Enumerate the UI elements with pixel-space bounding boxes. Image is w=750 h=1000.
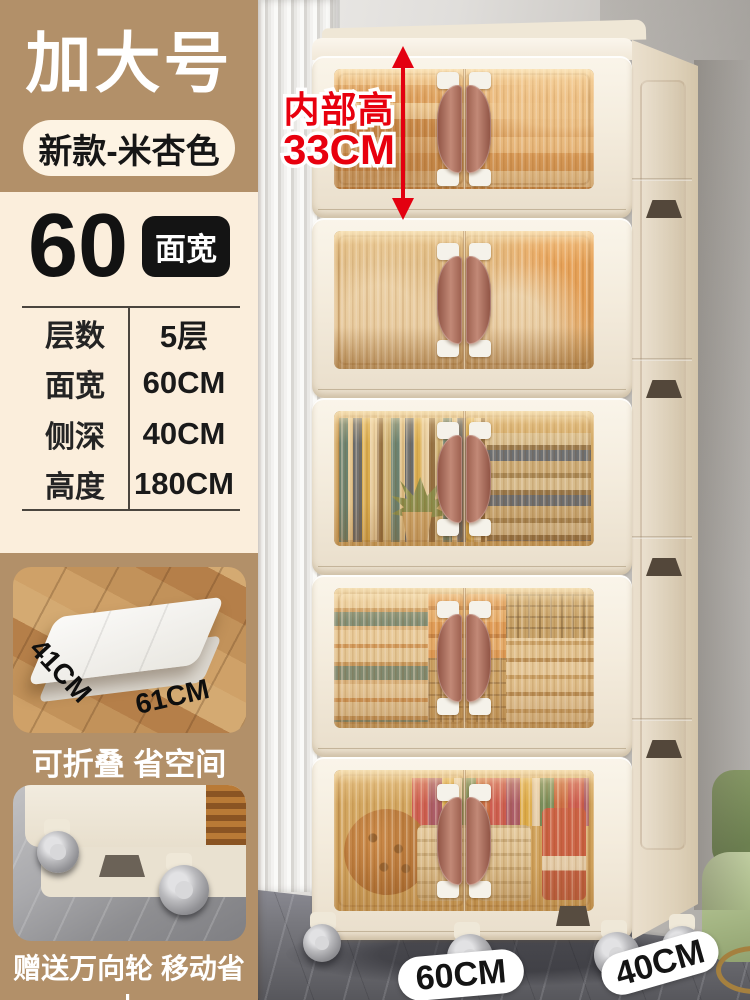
spec-value: 180CM (128, 466, 240, 502)
cabinet-tier-3 (312, 398, 632, 575)
spec-label: 侧深 (22, 412, 128, 456)
base-notch (556, 906, 590, 926)
annotation-label: 内部高 (264, 92, 414, 129)
tier-5-door-window (334, 770, 594, 911)
cabinet-side-face (632, 40, 698, 940)
tier-2-door-window (334, 231, 594, 369)
width-headline: 60 面宽 (0, 192, 258, 290)
side-tier-seam (632, 178, 692, 181)
spec-label: 高度 (22, 462, 128, 506)
width-badge: 面宽 (142, 216, 230, 277)
tier-4-door-window (334, 588, 594, 728)
side-tier-seam (632, 358, 692, 361)
cabinet-tier-2 (312, 218, 632, 398)
product-listing-image: 内部高 33CM 60CM 40CM 加大号 新款-米杏色 60 面宽 层数 5… (0, 0, 750, 1000)
drawer-notch (99, 855, 145, 877)
feature-card-foldable: 41CM 61CM (13, 567, 246, 733)
annotation-value: 33CM (264, 129, 414, 172)
spec-row: 面宽 60CM (22, 358, 240, 408)
spec-row: 高度 180CM (22, 459, 240, 509)
snack-basket-hint (206, 785, 246, 845)
side-recessed-panel (640, 80, 686, 850)
internal-height-annotation: 内部高 33CM (264, 92, 414, 172)
cabinet-tier-4 (312, 575, 632, 757)
side-tier-seam (632, 718, 692, 721)
spec-label: 面宽 (22, 361, 128, 405)
feature-caption-wheels: 赠送万向轮 移动省力 (0, 947, 258, 1000)
feature-card-wheels (13, 785, 246, 941)
height-arrow-icon (392, 198, 414, 220)
size-label: 加大号 (0, 0, 258, 106)
spec-label: 层数 (22, 311, 128, 355)
height-arrow-icon (392, 46, 414, 68)
info-sidebar: 加大号 新款-米杏色 60 面宽 层数 5层 面宽 60CM 侧深 40CM (0, 0, 258, 1000)
side-tier-seam (632, 536, 692, 539)
cabinet-front (312, 56, 632, 940)
variant-pill: 新款-米杏色 (23, 120, 235, 176)
spec-value: 40CM (128, 416, 240, 452)
spec-value: 5层 (128, 311, 240, 356)
spec-row: 层数 5层 (22, 308, 240, 358)
spec-row: 侧深 40CM (22, 409, 240, 459)
tier-3-door-window (334, 411, 594, 546)
width-number: 60 (28, 204, 128, 290)
feature-caption-foldable: 可折叠 省空间 (0, 739, 258, 784)
spec-table: 层数 5层 面宽 60CM 侧深 40CM 高度 180CM (22, 306, 240, 511)
spec-panel: 60 面宽 层数 5层 面宽 60CM 侧深 40CM 高度 180C (0, 192, 258, 553)
cabinet-wall-shadow (694, 60, 750, 910)
spec-value: 60CM (128, 365, 240, 401)
